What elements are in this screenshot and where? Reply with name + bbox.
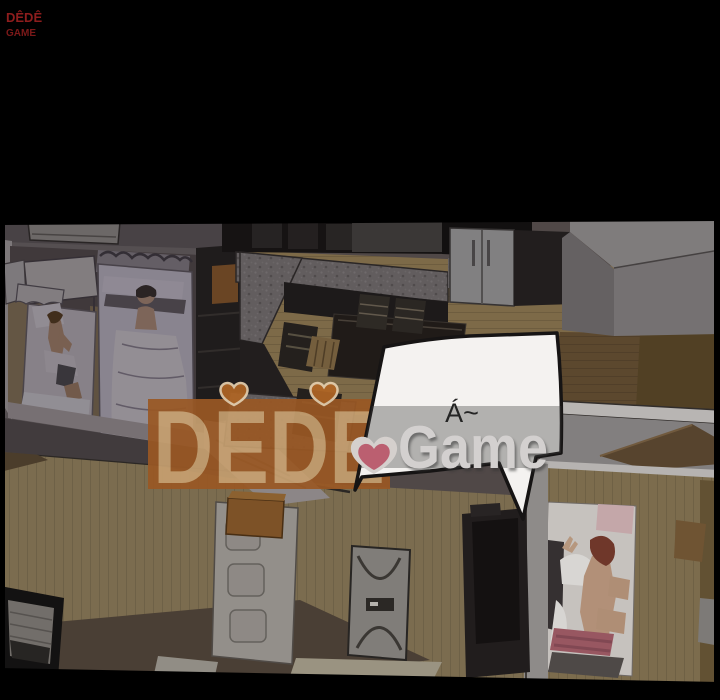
svg-text:GAME: GAME	[6, 28, 36, 39]
svg-text:Game: Game	[398, 414, 548, 481]
svg-text:DEDE: DEDE	[153, 390, 385, 506]
svg-text:DÊDÊ: DÊDÊ	[6, 10, 42, 25]
